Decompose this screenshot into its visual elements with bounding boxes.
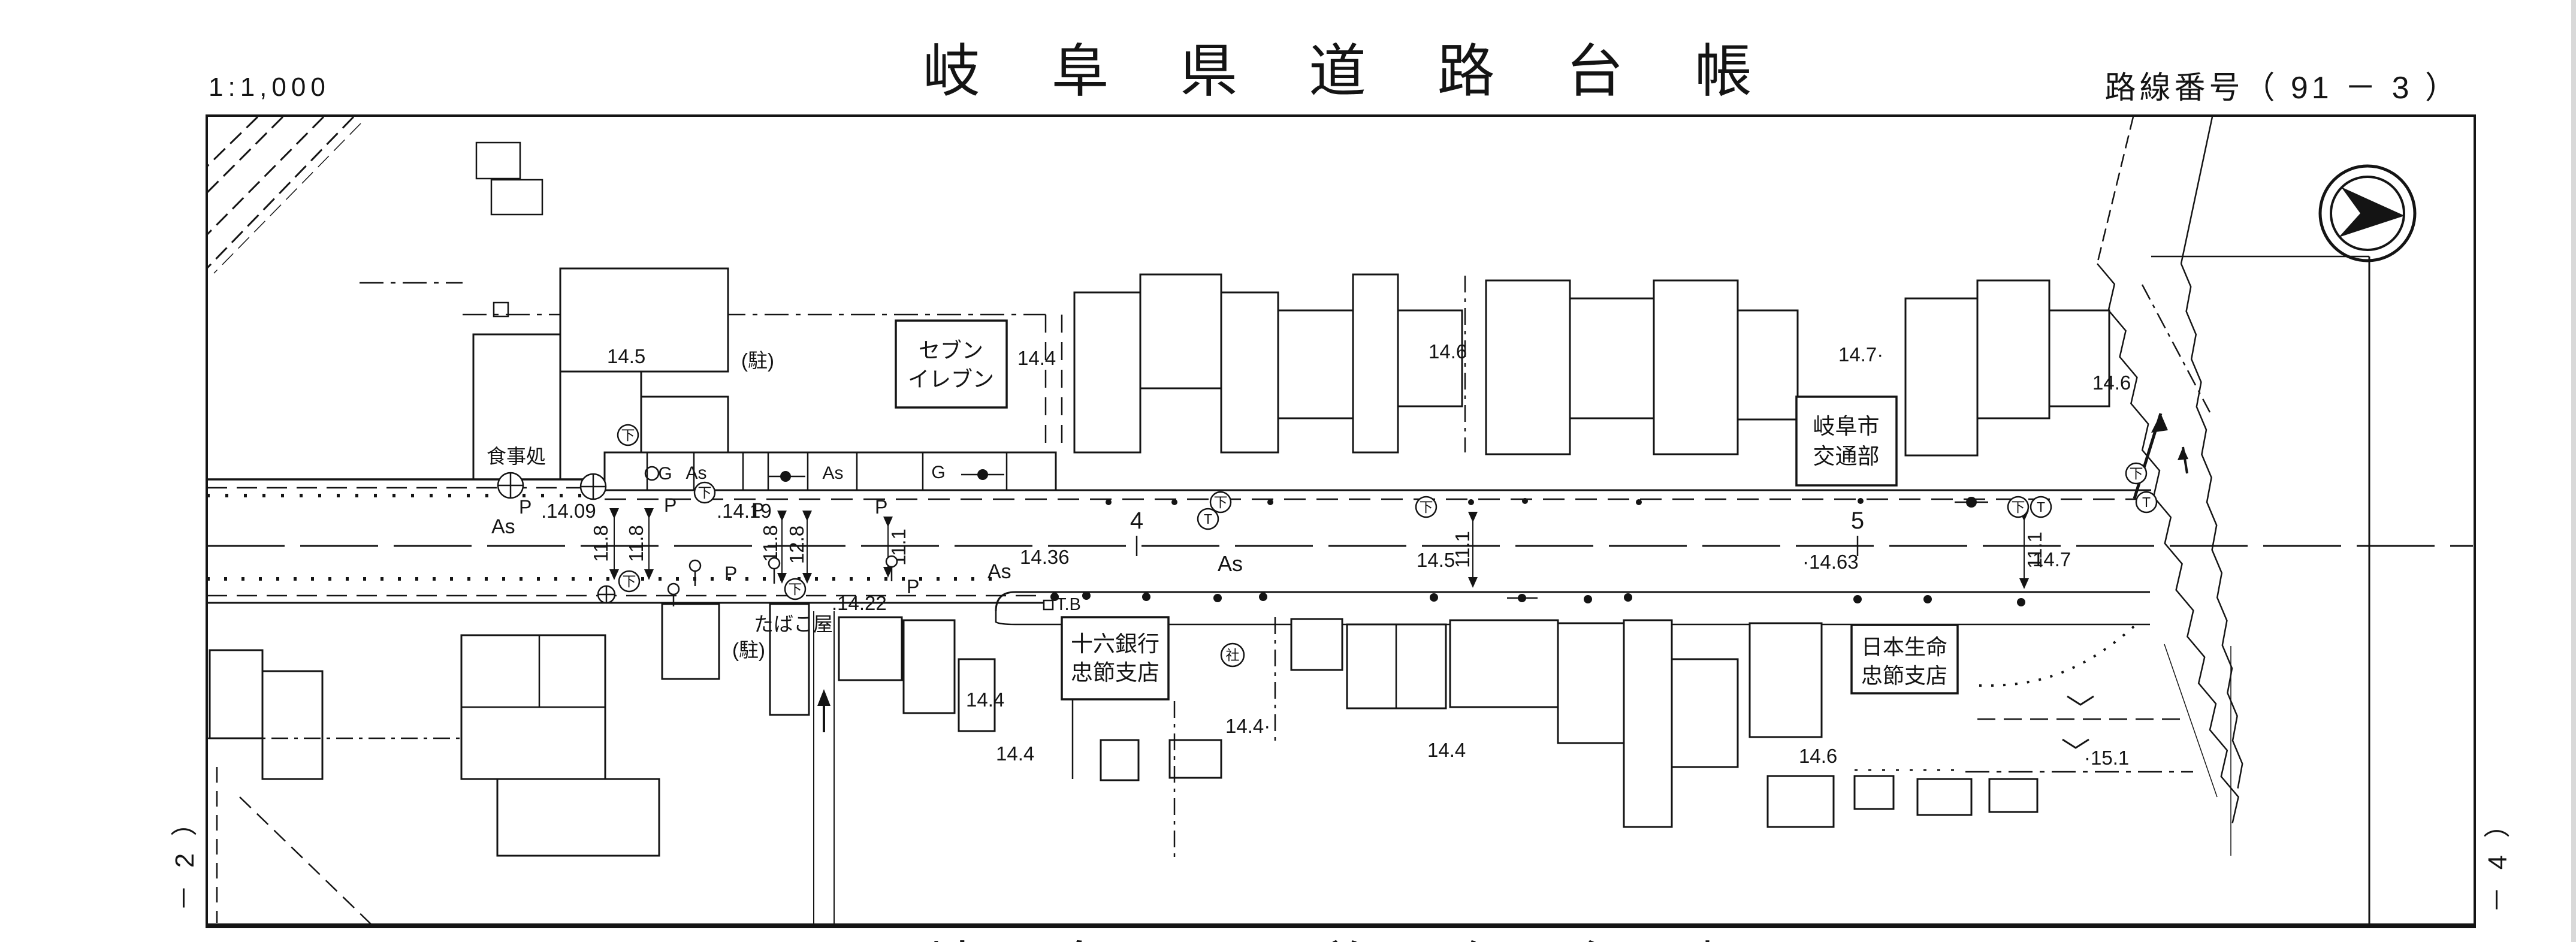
telephone-manhole-icon: T [2142, 494, 2151, 510]
elevation-label: 14.4 [996, 742, 1034, 765]
juroku-bank-label: 十六銀行 [1071, 632, 1159, 656]
sewer-manhole-icon: 下 [621, 427, 635, 443]
company-symbol-icon: 社 [1226, 647, 1240, 663]
nippon-life-label: 日本生命 [1861, 635, 1947, 659]
surface-type-label: As [822, 463, 843, 483]
surface-type-label: As [491, 515, 515, 538]
seven-eleven-label: セブン [919, 338, 983, 363]
parking-label: (駐) [741, 349, 774, 372]
elevation-label: 14.4· [1225, 715, 1270, 737]
next-sheet-title-clipped: 岐 阜 県 道 路 台 帳 [923, 937, 1780, 942]
map-canvas: 1:1,000 岐 阜 県 道 路 台 帳 路線番号（ 91 － 3 ） － 2… [0, 0, 2576, 942]
elevation-label: .14.19 [717, 500, 772, 522]
pole-label: P [875, 496, 887, 518]
benchmark-label: T.B [1056, 595, 1081, 614]
elevation-label: 14.4 [966, 689, 1004, 711]
road-width-dimension-lines [614, 514, 2024, 584]
elevation-label: ·15.1 [2084, 747, 2129, 769]
buildings-north-middle [1074, 274, 1798, 454]
pole-label: P [724, 563, 737, 584]
station-number: 5 [1851, 508, 1864, 534]
benchmark-icon [1044, 600, 1053, 609]
road-ledger-sheet: 1:1,000 岐 阜 県 道 路 台 帳 路線番号（ 91 － 3 ） － 2… [0, 0, 2576, 942]
sewer-manhole-icon: 下 [789, 581, 802, 597]
nw-small-buildings [476, 143, 542, 316]
se-detail-lines [1965, 624, 2193, 772]
tobacco-shop-label: たばこ屋 [754, 613, 833, 635]
company-symbol-icon: 社 [1221, 644, 1244, 666]
surface-type-label: G [658, 464, 672, 484]
nippon-life-label: 忠節支店 [1861, 663, 1947, 688]
pole-label: P [519, 496, 531, 518]
buildings-south-left [210, 604, 995, 856]
sewer-manhole-icon: 下 [698, 485, 712, 500]
elevation-label: .14.09 [541, 500, 596, 522]
page-title: 岐 阜 県 道 路 台 帳 [923, 40, 1780, 104]
elevation-label: 14.7 [2033, 548, 2071, 570]
surface-type-label: As [685, 463, 706, 483]
buildings-north-right [1905, 280, 2109, 455]
right-sheet-number: － 4 ） [2483, 807, 2512, 913]
parking-label: (駐) [732, 639, 765, 661]
north-arrow-icon [2320, 166, 2415, 261]
vegetation-mark [2067, 696, 2094, 705]
elevation-label: .14.22 [832, 592, 887, 614]
surface-type-label: As [987, 560, 1011, 583]
restaurant-label: 食事処 [487, 445, 546, 467]
dimension-value: 11.8 [625, 525, 647, 562]
elevation-label: 14.6 [1799, 745, 1837, 767]
dimension-value: 12.8 [786, 526, 808, 564]
buildings-south-middle [1101, 619, 1834, 827]
one-way-arrow-icon [817, 689, 831, 732]
sewer-manhole-icon: 下 [1420, 499, 1433, 515]
sewer-manhole-icon: 下 [1214, 494, 1228, 510]
surface-type-label: G [931, 463, 945, 482]
scale-label: 1:1,000 [209, 73, 330, 102]
nw-diagonal-lines [207, 117, 361, 273]
gifu-city-transport-label: 交通部 [1813, 444, 1880, 469]
gifu-city-transport-label: 岐阜市 [1813, 414, 1880, 439]
route-number-label: 路線番号（ 91 － 3 ） [2104, 71, 2460, 105]
elevation-label: 14.6 [1429, 340, 1467, 363]
elevation-label: 14.36 [1020, 546, 1070, 568]
building-nippon-life: 日本生命 忠節支店 [1852, 625, 1959, 770]
telephone-manhole-icon: T [2037, 499, 2045, 515]
sewer-manhole-icon: 下 [623, 573, 636, 589]
telephone-manhole-icon: T [1204, 511, 1212, 527]
elevation-label: 14.5 [607, 345, 645, 367]
seven-eleven-label: イレブン [908, 367, 994, 391]
elevation-label: 14.4 [1427, 739, 1466, 761]
sewer-manhole-icon: 下 [2130, 466, 2143, 481]
buildings-south-right [1855, 776, 2037, 815]
juroku-bank-label: 忠節支店 [1071, 660, 1159, 685]
elevation-label: 14.7· [1838, 343, 1883, 366]
elevation-label: 14.6 [2092, 372, 2131, 394]
surface-type-label: As [1218, 551, 1243, 576]
dimension-value: 11.8 [590, 525, 612, 562]
building-seven-eleven: セブン イレブン [896, 321, 1007, 407]
left-sheet-number: － 2 ） [170, 805, 200, 911]
pole-label: P [907, 576, 919, 597]
elevation-label: 14.4 [1017, 347, 1056, 369]
sewer-manhole-icon: 下 [2012, 499, 2025, 515]
pole-label: P [664, 494, 677, 516]
building-gifu-city-transport: 岐阜市 交通部 [1796, 397, 1896, 485]
elevation-label: 14.5 [1417, 549, 1455, 571]
elevation-label: ·14.63 [1802, 551, 1859, 573]
station-number: 4 [1130, 508, 1143, 534]
dimension-value: 11.8 [759, 525, 781, 562]
